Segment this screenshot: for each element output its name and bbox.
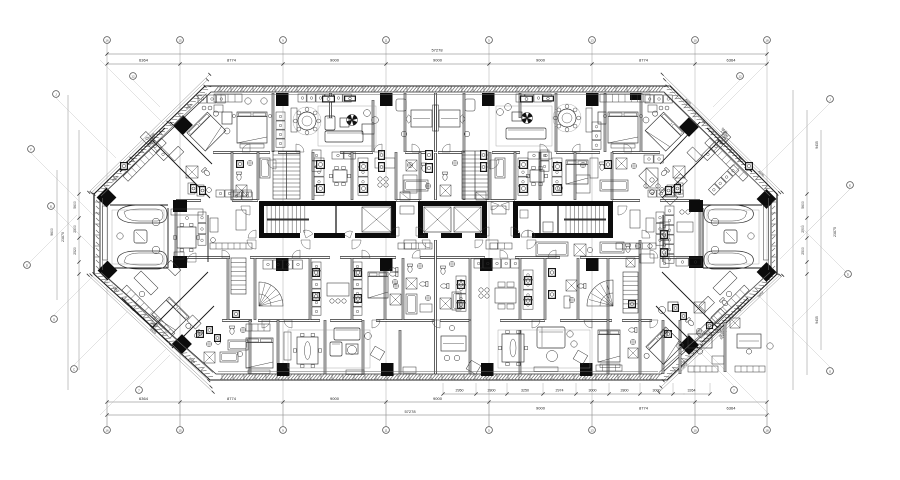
svg-text:13: 13 (590, 428, 594, 432)
svg-text:6364: 6364 (139, 396, 149, 401)
svg-text:16: 16 (105, 428, 109, 432)
svg-text:6364: 6364 (727, 406, 737, 411)
svg-text:3250: 3250 (521, 389, 529, 393)
svg-text:3264: 3264 (688, 389, 696, 393)
svg-text:E: E (50, 204, 52, 208)
svg-text:15: 15 (178, 428, 182, 432)
svg-text:6364: 6364 (727, 58, 737, 63)
svg-text:5600: 5600 (73, 201, 77, 209)
svg-text:16: 16 (105, 38, 109, 42)
svg-text:2800: 2800 (621, 389, 629, 393)
svg-text:13: 13 (590, 38, 594, 42)
svg-text:E: E (849, 183, 851, 187)
svg-text:9435: 9435 (815, 141, 819, 149)
svg-text:10: 10 (693, 38, 697, 42)
svg-text:11: 11 (384, 38, 387, 42)
svg-text:23870: 23870 (61, 232, 65, 242)
svg-text:2800: 2800 (488, 389, 496, 393)
svg-text:9000: 9000 (536, 58, 546, 63)
svg-text:57278: 57278 (404, 409, 416, 414)
svg-text:11: 11 (384, 428, 387, 432)
svg-text:6364: 6364 (139, 58, 149, 63)
svg-text:9000: 9000 (433, 58, 443, 63)
svg-text:9000: 9000 (536, 406, 546, 411)
svg-text:12: 12 (131, 74, 135, 78)
svg-text:8774: 8774 (639, 58, 649, 63)
svg-text:2950: 2950 (456, 389, 464, 393)
svg-text:23875: 23875 (833, 227, 837, 237)
svg-text:10: 10 (693, 428, 697, 432)
svg-text:2520: 2520 (73, 247, 77, 255)
svg-text:2500: 2500 (801, 247, 805, 255)
svg-text:9600: 9600 (50, 228, 54, 236)
svg-text:5600: 5600 (801, 201, 805, 209)
svg-text:15: 15 (178, 38, 182, 42)
svg-text:8774: 8774 (227, 58, 237, 63)
svg-text:9000: 9000 (330, 396, 340, 401)
svg-text:12: 12 (738, 74, 742, 78)
svg-text:3000: 3000 (589, 389, 597, 393)
svg-text:9435: 9435 (815, 316, 819, 324)
svg-text:2974: 2974 (556, 389, 564, 393)
svg-text:18: 18 (765, 38, 769, 42)
svg-text:8774: 8774 (227, 396, 237, 401)
svg-text:18: 18 (765, 428, 769, 432)
svg-text:9000: 9000 (433, 396, 443, 401)
svg-text:9000: 9000 (330, 58, 340, 63)
svg-text:8774: 8774 (639, 406, 649, 411)
svg-text:57278: 57278 (431, 48, 443, 53)
svg-text:F: F (30, 147, 32, 151)
